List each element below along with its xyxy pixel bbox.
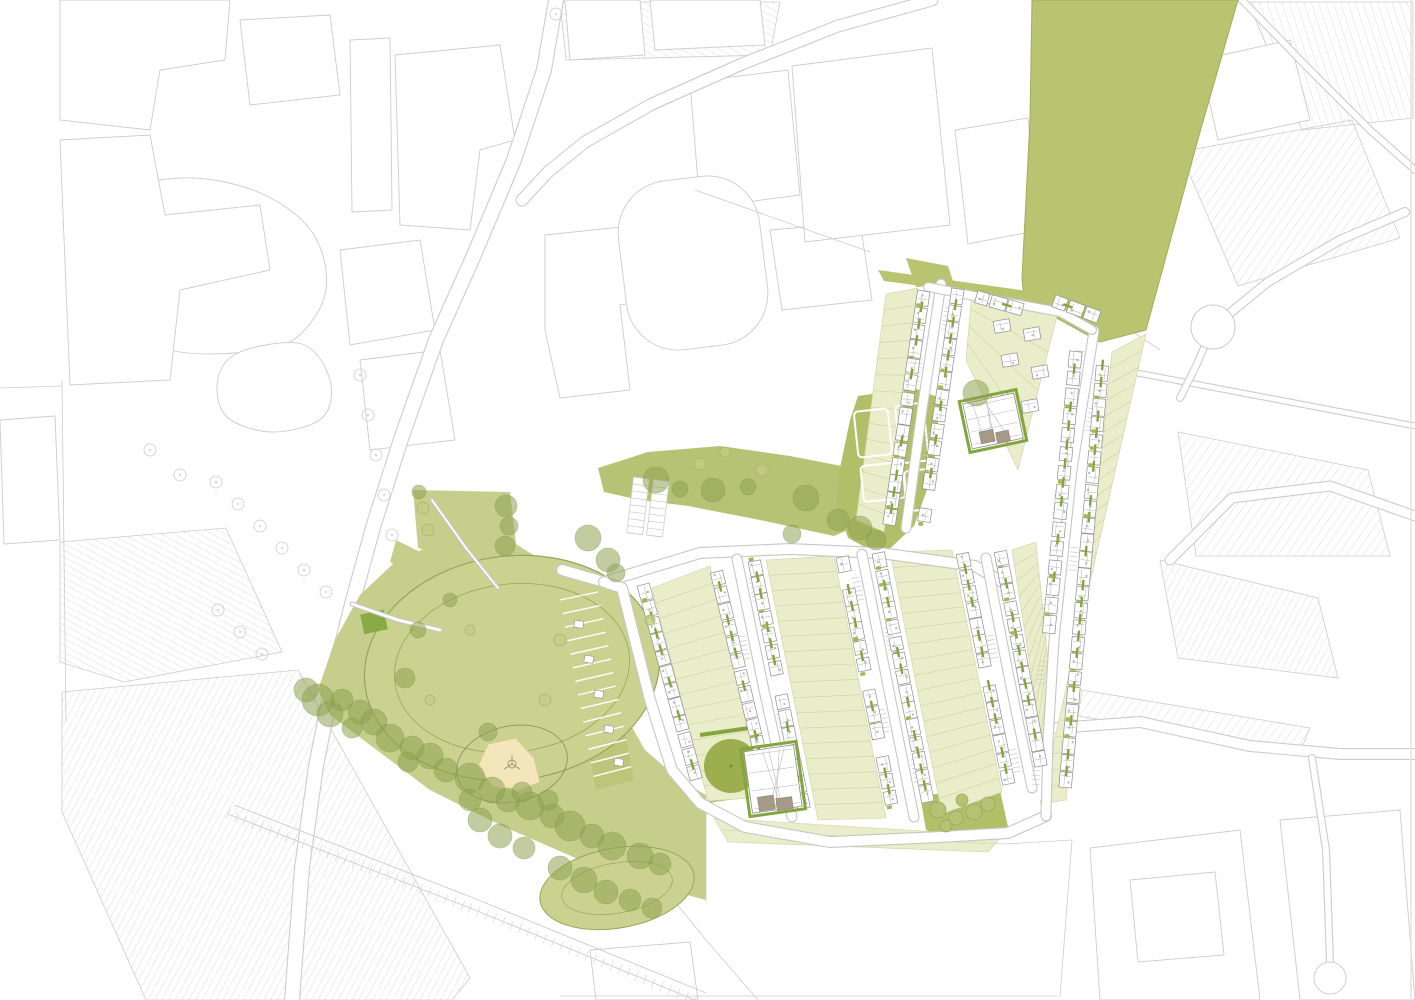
tree-canopy-icon — [827, 509, 849, 531]
context-open-space — [217, 342, 332, 432]
front-garden-patch — [938, 385, 943, 389]
tree-canopy-icon — [701, 478, 725, 502]
small-tree-icon — [645, 615, 655, 625]
context-boundary-line — [760, 833, 1072, 997]
tree-canopy-icon — [443, 593, 457, 607]
detached-house-footprint — [1021, 399, 1039, 414]
context-building — [240, 15, 340, 105]
railway-tick — [461, 901, 465, 910]
context-building — [565, 0, 645, 60]
house-footprint — [901, 392, 915, 407]
masterplan-svg — [0, 0, 1415, 1000]
roof-plan — [776, 797, 794, 811]
railway-tick — [585, 951, 589, 960]
context-terrace-plots — [1160, 560, 1338, 678]
tree-canopy-icon — [468, 808, 492, 832]
tree-canopy-icon — [575, 525, 601, 551]
parking-bay-tick — [988, 644, 996, 646]
tree-canopy-icon — [395, 668, 415, 688]
house-footprint — [869, 722, 884, 740]
allotment-shed — [614, 758, 624, 766]
context-building — [792, 48, 950, 242]
tree-canopy-icon — [740, 479, 756, 495]
context-building — [1130, 872, 1224, 962]
parking-bay-tick — [1070, 552, 1078, 553]
allotment-shed — [584, 655, 594, 663]
small-tree-icon — [756, 464, 768, 476]
small-tree-icon — [417, 502, 429, 514]
house-footprint — [918, 508, 932, 523]
context-boundary-line — [0, 386, 62, 388]
railway-tick — [468, 903, 472, 912]
house-footprint — [898, 407, 913, 426]
tree-canopy-icon — [500, 517, 518, 535]
railway-tick — [510, 920, 514, 929]
parking-bay-tick — [1012, 762, 1020, 764]
house-footprint — [842, 588, 858, 607]
detached-house-footprint — [1031, 365, 1049, 380]
house-footprint — [905, 718, 921, 737]
allotment-shed — [594, 690, 604, 698]
house-footprint — [866, 705, 881, 723]
context-building — [0, 416, 60, 544]
tree-canopy-icon — [793, 485, 819, 511]
shrub-icon — [940, 820, 952, 832]
small-tree-icon — [720, 447, 730, 457]
house-footprint — [919, 784, 935, 803]
context-culdesac — [1191, 305, 1235, 349]
parking-bay-tick — [1070, 556, 1078, 557]
front-garden-patch — [886, 505, 891, 509]
house-footprint — [710, 570, 725, 586]
parking-bay-tick — [986, 635, 994, 637]
context-courtyard — [612, 170, 774, 356]
parking-bay-tick — [1069, 565, 1077, 566]
house-footprint — [973, 634, 989, 654]
tree-canopy-icon — [398, 752, 418, 772]
tree-canopy-icon — [495, 536, 515, 556]
detached-house-footprint — [1001, 353, 1019, 368]
house-footprint — [730, 653, 745, 669]
tree-canopy-icon — [866, 530, 886, 550]
shrub-icon — [981, 797, 995, 811]
shrub-icon — [930, 802, 946, 818]
small-tree-icon — [425, 695, 435, 705]
railway-tick — [568, 944, 572, 953]
railway-tick — [551, 937, 555, 946]
context-terrace-plots — [1180, 120, 1400, 286]
front-garden-patch — [1088, 463, 1093, 467]
tree-canopy-icon — [488, 824, 512, 848]
house-footprint — [1019, 683, 1034, 701]
tree-canopy-icon — [642, 898, 662, 918]
context-building — [650, 0, 765, 50]
tree-canopy-icon — [619, 889, 641, 911]
parking-bay-tick — [1009, 749, 1017, 751]
railway-tick — [526, 927, 530, 936]
front-garden-patch — [1084, 514, 1089, 518]
front-garden-patch — [894, 454, 899, 458]
small-tree-icon — [539, 694, 551, 706]
tree-canopy-icon — [571, 867, 597, 893]
parking-bay-tick — [738, 636, 746, 638]
tree-canopy-icon — [410, 622, 426, 638]
house-footprint — [912, 751, 927, 769]
house-footprint — [775, 694, 790, 710]
tree-canopy-icon — [963, 380, 989, 406]
house-footprint — [993, 734, 1009, 754]
house-footprint — [878, 584, 894, 604]
allotment-shed — [604, 725, 614, 733]
house-footprint — [986, 701, 1002, 720]
railway-tick — [476, 907, 480, 916]
context-building — [350, 38, 392, 212]
front-garden-patch — [916, 303, 921, 307]
house-footprint — [1042, 615, 1056, 634]
parking-bay-tick — [990, 657, 998, 659]
parking-bay-tick — [852, 577, 860, 579]
tree-canopy-icon — [672, 481, 688, 497]
front-garden-patch — [1064, 734, 1069, 738]
context-building — [1280, 810, 1415, 1000]
tree-canopy-icon — [649, 853, 671, 875]
house-footprint — [836, 556, 851, 573]
front-garden-patch — [1049, 574, 1054, 578]
parking-bay-tick — [852, 581, 860, 583]
parking-bay-tick — [989, 653, 997, 655]
parking-bay-tick — [987, 639, 995, 641]
house-footprint — [882, 601, 898, 620]
front-garden-patch — [1094, 395, 1099, 399]
context-culdesac — [1314, 962, 1346, 994]
house-footprint — [886, 619, 901, 635]
tree-canopy-icon — [495, 495, 517, 517]
parking-bay-tick — [1068, 570, 1076, 571]
railway-tick — [518, 924, 522, 933]
house-footprint — [778, 709, 794, 728]
railway-tick — [453, 897, 457, 906]
shrub-icon — [956, 794, 968, 806]
house-footprint — [969, 617, 985, 637]
parking-bay-tick — [885, 635, 893, 637]
front-garden-patch — [860, 672, 866, 676]
context-building — [590, 942, 698, 1000]
front-garden-patch — [1091, 429, 1096, 433]
front-garden-patch — [1066, 717, 1071, 721]
railway-tick — [428, 888, 432, 897]
roof-plan — [995, 430, 1010, 443]
front-garden-patch — [1045, 612, 1050, 616]
front-garden-patch — [748, 557, 754, 561]
railway-tick — [535, 931, 539, 940]
site-plan-page — [0, 0, 1415, 1000]
railway-tick — [493, 914, 497, 923]
house-footprint — [734, 669, 749, 685]
parking-bay-tick — [1011, 758, 1019, 760]
tree-canopy-icon — [479, 723, 497, 741]
tree-canopy-icon — [513, 837, 535, 859]
house-footprint — [898, 684, 914, 704]
house-footprint — [846, 604, 862, 624]
parking-bay-tick — [1013, 766, 1021, 768]
parking-bay-tick — [853, 586, 861, 588]
tree-canopy-icon — [607, 564, 625, 582]
parking-bay-tick — [1071, 547, 1079, 548]
tree-canopy-icon — [594, 880, 618, 904]
roof-plan — [979, 429, 995, 444]
railway-tick — [576, 948, 580, 957]
tree-canopy-icon — [538, 790, 558, 810]
house-footprint — [1032, 750, 1047, 767]
house-footprint — [755, 593, 770, 611]
front-garden-patch — [887, 805, 893, 809]
small-tree-icon — [694, 458, 706, 470]
railway-tick — [485, 910, 489, 919]
house-footprint — [966, 602, 981, 620]
tree-canopy-icon — [434, 758, 458, 782]
front-garden-patch — [940, 368, 945, 372]
tree-canopy-icon — [598, 832, 626, 860]
tree-canopy-icon — [512, 782, 532, 802]
shrub-icon — [966, 804, 982, 820]
railway-tick — [560, 941, 564, 950]
house-footprint — [1044, 597, 1058, 614]
tree-canopy-icon — [294, 678, 318, 702]
tree-canopy-icon — [783, 525, 801, 543]
tree-canopy-icon — [643, 467, 669, 493]
front-garden-patch — [918, 522, 923, 526]
tree-canopy-icon — [412, 485, 426, 499]
parking-bay-tick — [1013, 771, 1021, 773]
house-footprint — [994, 550, 1009, 566]
tree-canopy-icon — [548, 856, 572, 880]
detached-house-footprint — [993, 319, 1011, 334]
house-footprint — [863, 689, 878, 707]
context-terrace-plots — [60, 528, 282, 682]
parking-bay-tick — [1010, 753, 1018, 755]
context-building — [60, 0, 230, 130]
small-tree-icon — [554, 634, 566, 646]
detached-house-footprint — [1023, 327, 1041, 342]
tree-canopy-icon — [342, 718, 362, 738]
parking-bay-tick — [988, 648, 996, 650]
roof-plan — [757, 795, 775, 811]
railway-tick — [543, 934, 547, 943]
railway-tick — [436, 891, 440, 900]
tree-canopy-icon — [459, 789, 481, 811]
context-building — [340, 240, 435, 345]
allotment-shed — [574, 620, 584, 628]
railway-tick — [501, 917, 505, 926]
small-tree-icon — [465, 625, 475, 635]
railway-tick — [444, 894, 448, 903]
parking-bay-tick — [1069, 561, 1077, 562]
small-tree-icon — [422, 524, 434, 536]
front-garden-patch — [1090, 446, 1095, 450]
